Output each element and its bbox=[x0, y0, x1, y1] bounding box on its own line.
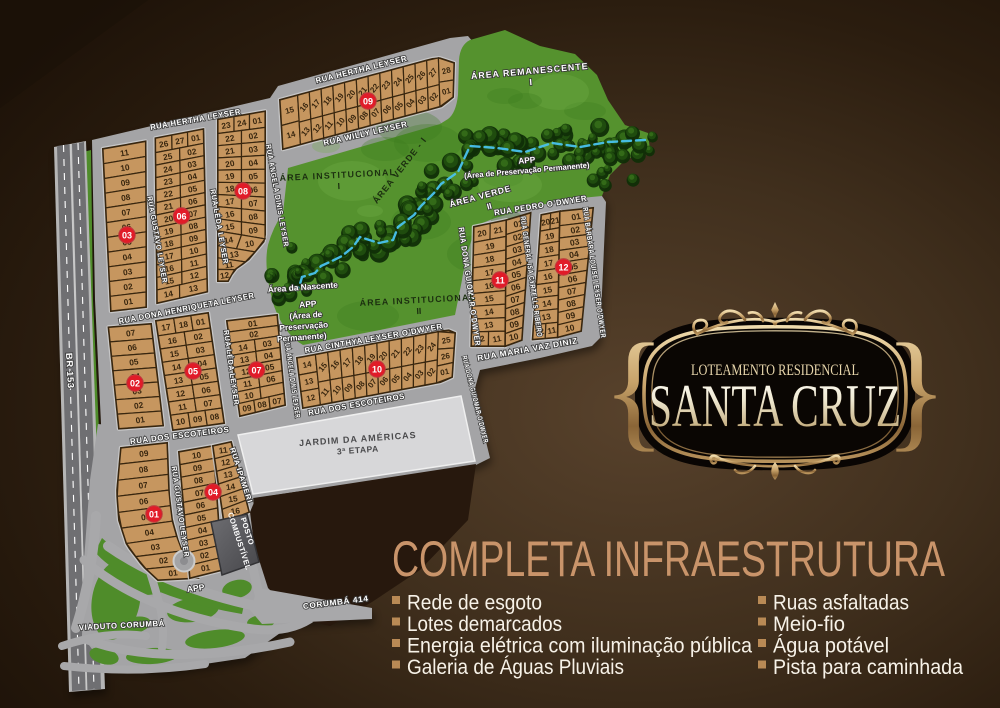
svg-text:Pista para caminhada: Pista para caminhada bbox=[773, 655, 963, 679]
svg-text:09: 09 bbox=[363, 97, 373, 107]
svg-text:09: 09 bbox=[139, 448, 150, 459]
svg-text:05: 05 bbox=[196, 512, 207, 523]
svg-text:07: 07 bbox=[194, 487, 205, 498]
svg-text:09: 09 bbox=[192, 462, 203, 473]
svg-text:II: II bbox=[416, 306, 421, 316]
svg-text:04: 04 bbox=[197, 525, 208, 536]
svg-text:I: I bbox=[337, 181, 340, 191]
svg-text:Água potável: Água potável bbox=[773, 633, 889, 658]
svg-text:03: 03 bbox=[198, 537, 209, 548]
svg-text:08: 08 bbox=[238, 187, 248, 197]
svg-text:03: 03 bbox=[150, 541, 161, 552]
svg-text:02: 02 bbox=[199, 550, 210, 561]
svg-text:02: 02 bbox=[130, 379, 140, 389]
svg-text:15: 15 bbox=[228, 493, 239, 504]
svg-text:07: 07 bbox=[138, 480, 149, 491]
svg-text:08: 08 bbox=[138, 464, 149, 475]
svg-text:Energia elétrica com iluminaçã: Energia elétrica com iluminação pública bbox=[407, 634, 752, 658]
svg-text:07: 07 bbox=[251, 366, 261, 376]
svg-text:Ruas asfaltadas: Ruas asfaltadas bbox=[773, 591, 909, 615]
svg-text:10: 10 bbox=[191, 450, 202, 461]
svg-text:Lotes demarcados: Lotes demarcados bbox=[407, 612, 562, 636]
svg-text:13: 13 bbox=[223, 469, 234, 480]
svg-text:01: 01 bbox=[200, 562, 211, 573]
svg-text:BR 153: BR 153 bbox=[64, 353, 76, 389]
svg-text:12: 12 bbox=[558, 263, 568, 273]
svg-text:12: 12 bbox=[220, 457, 231, 468]
svg-text:06: 06 bbox=[138, 495, 149, 506]
svg-text:02: 02 bbox=[158, 555, 169, 566]
svg-text:08: 08 bbox=[193, 475, 204, 486]
svg-text:Galeria de Águas Pluviais: Galeria de Águas Pluviais bbox=[407, 654, 624, 679]
svg-text:03: 03 bbox=[122, 231, 132, 241]
svg-text:SANTA CRUZ: SANTA CRUZ bbox=[649, 373, 901, 439]
svg-text:04: 04 bbox=[144, 527, 155, 538]
svg-text:01: 01 bbox=[149, 510, 159, 520]
svg-text:14: 14 bbox=[225, 481, 236, 492]
svg-text:APP: APP bbox=[518, 155, 536, 165]
svg-text:06: 06 bbox=[195, 500, 206, 511]
svg-text:05: 05 bbox=[188, 367, 198, 377]
svg-text:04: 04 bbox=[208, 488, 218, 498]
svg-text:APP: APP bbox=[299, 298, 317, 309]
svg-text:11: 11 bbox=[218, 444, 228, 455]
svg-text:10: 10 bbox=[372, 365, 382, 375]
svg-text:06: 06 bbox=[176, 212, 186, 222]
svg-text:Rede de esgoto: Rede de esgoto bbox=[407, 591, 542, 615]
svg-text:COMPLETA INFRAESTRUTURA: COMPLETA INFRAESTRUTURA bbox=[392, 531, 945, 587]
svg-text:Meio-fio: Meio-fio bbox=[773, 612, 845, 636]
svg-text:11: 11 bbox=[495, 276, 505, 286]
